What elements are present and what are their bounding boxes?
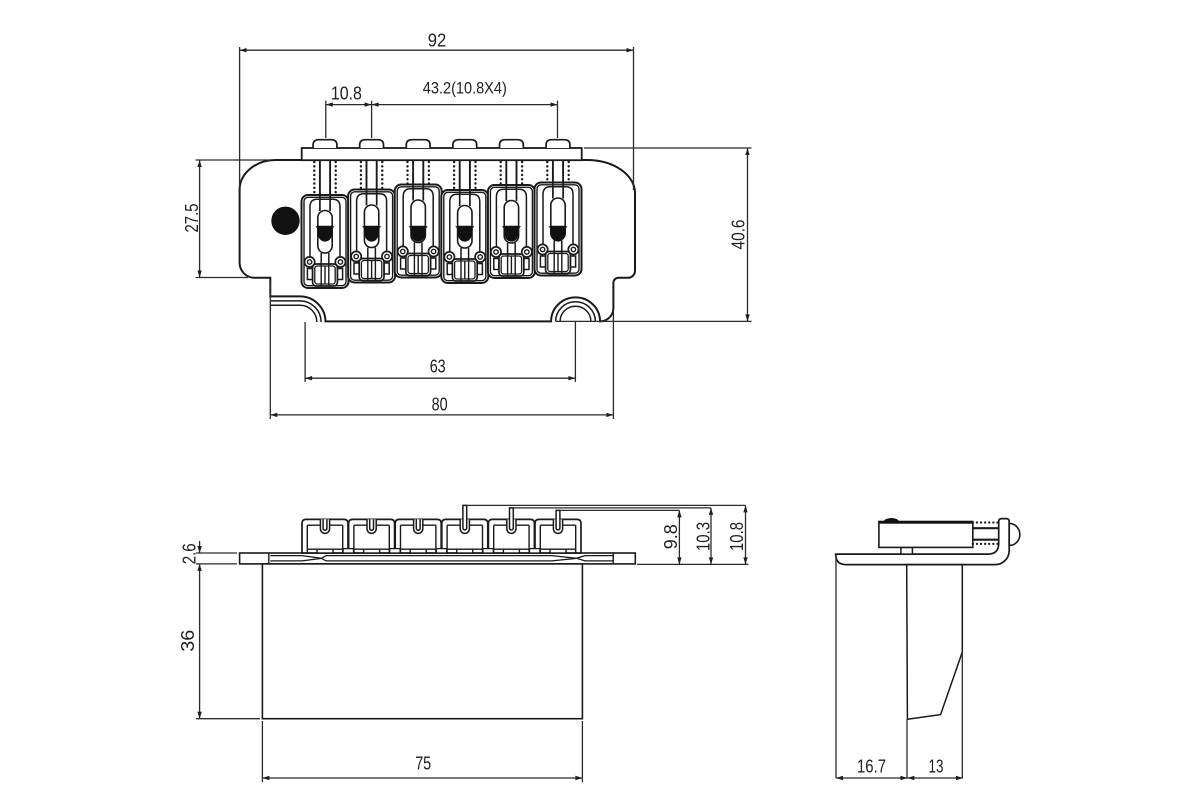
svg-text:63: 63 xyxy=(430,357,446,377)
svg-text:40.6: 40.6 xyxy=(729,220,749,250)
svg-text:36: 36 xyxy=(178,630,198,652)
svg-text:10.3: 10.3 xyxy=(694,522,714,551)
svg-text:10.8: 10.8 xyxy=(727,522,747,551)
svg-text:92: 92 xyxy=(428,30,447,50)
svg-text:13: 13 xyxy=(929,757,944,777)
svg-text:27.5: 27.5 xyxy=(182,204,202,233)
svg-text:80: 80 xyxy=(432,395,448,415)
svg-text:16.7: 16.7 xyxy=(857,757,886,777)
svg-text:75: 75 xyxy=(415,754,431,774)
svg-text:10.8: 10.8 xyxy=(331,84,362,104)
svg-text:9.8: 9.8 xyxy=(661,524,681,549)
svg-text:2.6: 2.6 xyxy=(180,543,200,564)
svg-text:43.2(10.8X4): 43.2(10.8X4) xyxy=(423,79,507,98)
